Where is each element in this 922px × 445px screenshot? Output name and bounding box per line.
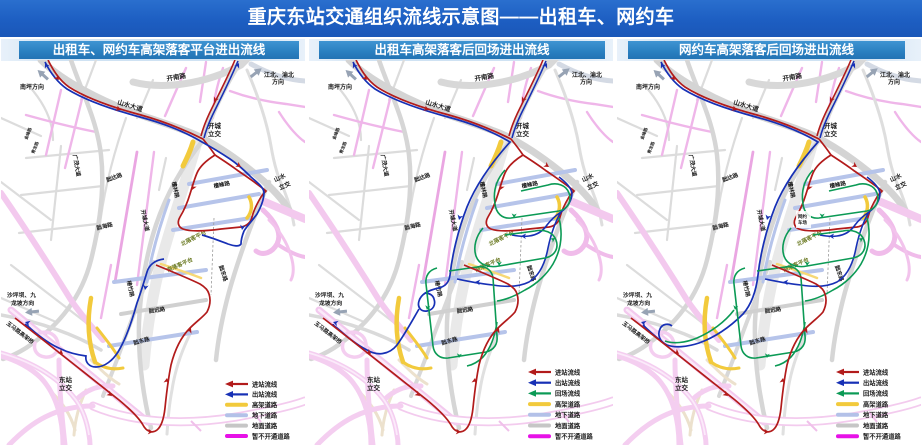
- svg-text:高架道路: 高架道路: [555, 399, 581, 408]
- svg-text:暂不开通道路: 暂不开通道路: [555, 432, 593, 441]
- svg-text:暂不开通道路: 暂不开通道路: [863, 432, 901, 441]
- svg-text:地面道路: 地面道路: [252, 421, 278, 430]
- svg-text:回场流线: 回场流线: [555, 389, 581, 398]
- svg-text:回场流线: 回场流线: [863, 389, 889, 398]
- svg-text:进站流线: 进站流线: [555, 367, 581, 376]
- svg-text:地下道路: 地下道路: [555, 410, 581, 419]
- svg-text:高架道路: 高架道路: [863, 399, 889, 408]
- svg-text:地面道路: 地面道路: [863, 421, 889, 430]
- svg-text:高架道路: 高架道路: [252, 400, 278, 409]
- svg-text:网约: 网约: [798, 213, 807, 220]
- svg-text:出站流线: 出站流线: [252, 390, 278, 399]
- svg-text:出站流线: 出站流线: [555, 378, 581, 387]
- svg-text:进站流线: 进站流线: [863, 367, 889, 376]
- svg-text:出站流线: 出站流线: [863, 378, 889, 387]
- svg-text:地下道路: 地下道路: [252, 411, 278, 420]
- svg-text:地下道路: 地下道路: [863, 410, 889, 419]
- svg-text:暂不开通道路: 暂不开通道路: [252, 431, 290, 440]
- svg-text:地面道路: 地面道路: [555, 421, 581, 430]
- svg-text:车场: 车场: [798, 219, 807, 226]
- svg-text:进站流线: 进站流线: [252, 379, 278, 388]
